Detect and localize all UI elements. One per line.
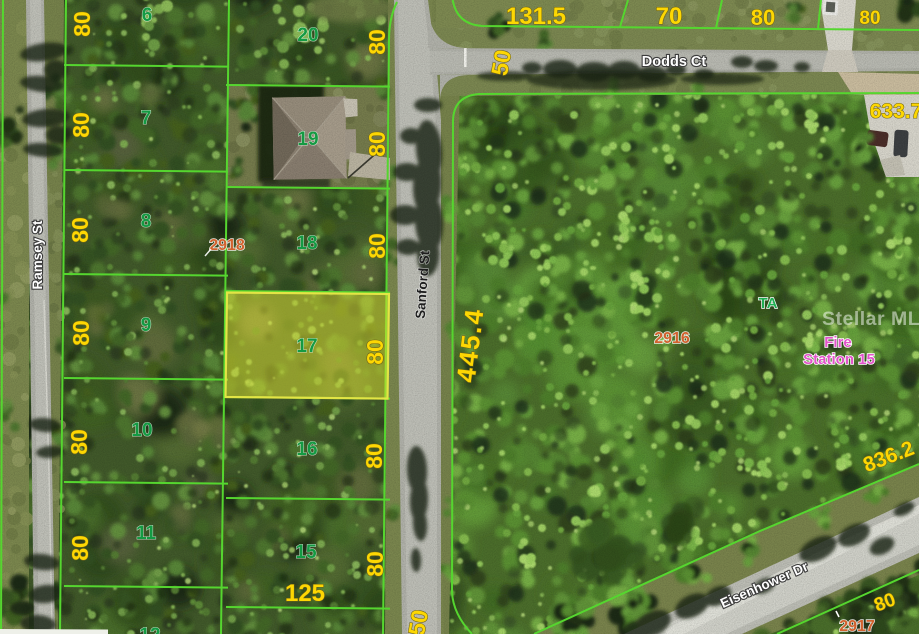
svg-text:Stellar MLS: Stellar MLS xyxy=(822,308,919,330)
svg-text:80: 80 xyxy=(67,217,93,243)
svg-text:7: 7 xyxy=(141,108,152,129)
svg-text:18: 18 xyxy=(296,233,317,254)
svg-text:12: 12 xyxy=(139,625,160,634)
svg-text:80: 80 xyxy=(69,11,95,37)
svg-text:80: 80 xyxy=(859,8,880,29)
svg-text:9: 9 xyxy=(141,315,152,336)
svg-text:125: 125 xyxy=(285,580,325,607)
svg-text:50: 50 xyxy=(403,608,433,634)
svg-text:80: 80 xyxy=(364,131,390,157)
svg-text:80: 80 xyxy=(364,233,390,259)
svg-text:80: 80 xyxy=(67,535,93,561)
svg-text:131.5: 131.5 xyxy=(506,3,566,30)
svg-text:633.7: 633.7 xyxy=(870,100,919,123)
svg-text:80: 80 xyxy=(66,429,92,455)
svg-text:20: 20 xyxy=(297,25,318,46)
svg-text:19: 19 xyxy=(297,129,318,150)
svg-text:11: 11 xyxy=(136,523,157,544)
svg-text:2917: 2917 xyxy=(839,618,875,634)
svg-text:Station 15: Station 15 xyxy=(803,351,875,368)
svg-text:2916: 2916 xyxy=(654,330,690,347)
svg-text:16: 16 xyxy=(296,439,317,460)
svg-text:80: 80 xyxy=(362,551,388,577)
svg-text:70: 70 xyxy=(656,3,683,30)
svg-text:17: 17 xyxy=(296,336,317,357)
svg-text:Ramsey St: Ramsey St xyxy=(30,220,45,290)
svg-text:80: 80 xyxy=(68,112,94,138)
svg-text:80: 80 xyxy=(361,443,387,469)
svg-text:6: 6 xyxy=(142,5,153,26)
svg-text:80: 80 xyxy=(362,339,388,365)
svg-text:Dodds Ct: Dodds Ct xyxy=(642,54,707,70)
svg-text:15: 15 xyxy=(295,542,317,563)
svg-text:TA: TA xyxy=(759,295,778,312)
svg-text:80: 80 xyxy=(364,29,390,55)
svg-text:10: 10 xyxy=(131,420,152,441)
svg-text:50: 50 xyxy=(486,48,516,78)
svg-text:2918: 2918 xyxy=(209,237,245,254)
svg-text:Fire: Fire xyxy=(824,334,852,351)
svg-text:80: 80 xyxy=(751,5,775,30)
svg-text:80: 80 xyxy=(68,320,94,346)
svg-text:8: 8 xyxy=(141,211,152,232)
